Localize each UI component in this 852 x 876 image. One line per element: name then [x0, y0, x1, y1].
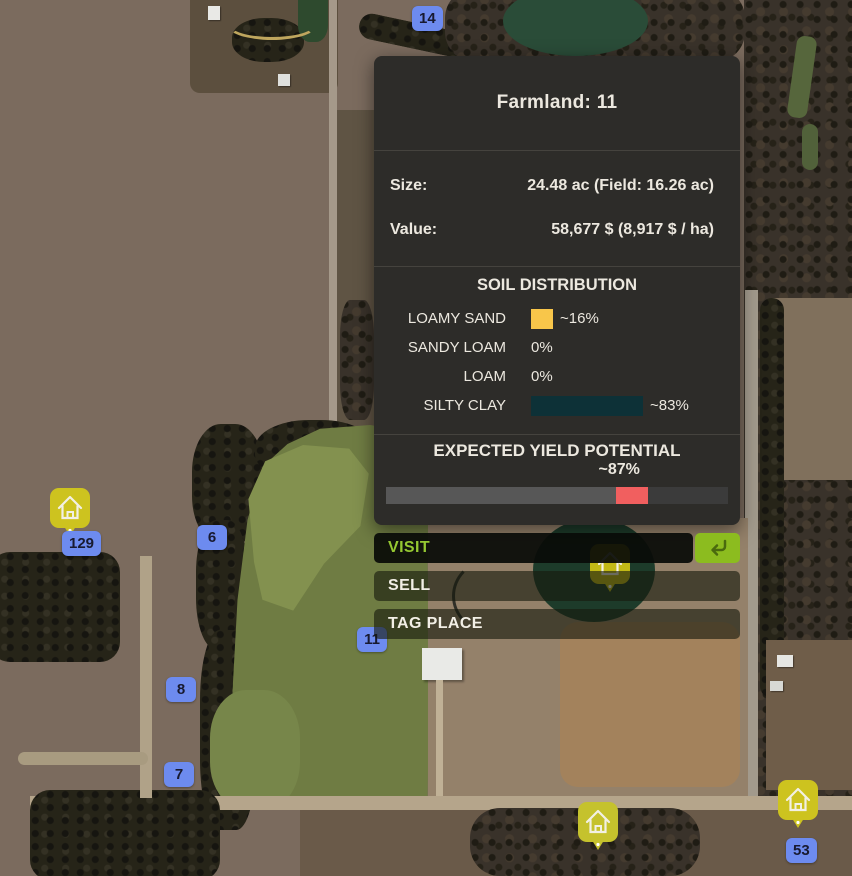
map-tree-line	[760, 298, 784, 698]
visit-button-row: VISIT	[374, 533, 740, 563]
field-marker-8[interactable]: 8	[166, 677, 196, 702]
value-label: Value:	[390, 221, 437, 239]
map-field-right	[772, 298, 852, 480]
soil-bar	[531, 396, 643, 416]
map-road-branch	[18, 752, 148, 765]
house-icon	[778, 780, 818, 828]
soil-label: SILTY CLAY	[390, 397, 506, 414]
return-arrow-icon	[705, 535, 731, 561]
size-label: Size:	[390, 177, 427, 195]
soil-heading: SOIL DISTRIBUTION	[374, 276, 740, 295]
map-building	[278, 74, 290, 86]
soil-row: SANDY LOAM 0%	[374, 333, 740, 362]
map-trail	[436, 680, 443, 798]
value-value: 58,677 $ (8,917 $ / ha)	[551, 221, 714, 239]
map-green-strip	[802, 124, 818, 170]
map-dirt-road	[226, 8, 318, 40]
tag-place-button[interactable]: TAG PLACE	[374, 609, 740, 639]
map-building	[770, 681, 783, 691]
yield-section: EXPECTED YIELD POTENTIAL ~87%	[374, 435, 740, 525]
soil-label: SANDY LOAM	[390, 339, 506, 356]
action-buttons: VISIT SELL TAG PLACE	[374, 533, 740, 647]
sell-label: SELL	[388, 577, 431, 595]
map-meadow-patch	[210, 690, 300, 810]
farmland-info-panel: Farmland: 11 Size: 24.48 ac (Field: 16.2…	[374, 56, 740, 525]
yield-heading: EXPECTED YIELD POTENTIAL	[374, 441, 740, 461]
map-trees	[340, 300, 374, 420]
farm-house-pin[interactable]	[776, 778, 820, 830]
map-forest	[30, 790, 220, 876]
map-building	[777, 655, 793, 667]
field-marker-6[interactable]: 6	[197, 525, 227, 550]
size-row: Size: 24.48 ac (Field: 16.26 ac)	[390, 164, 714, 208]
soil-percent: ~83%	[650, 397, 689, 414]
yield-label-row: ~87%	[374, 461, 740, 485]
soil-row: SILTY CLAY ~83%	[374, 391, 740, 420]
yield-bar	[386, 487, 728, 504]
panel-title: Farmland: 11	[374, 56, 740, 150]
value-row: Value: 58,677 $ (8,917 $ / ha)	[390, 208, 714, 252]
soil-percent: 0%	[531, 368, 553, 385]
soil-label: LOAMY SAND	[390, 310, 506, 327]
yield-fill	[386, 487, 616, 504]
visit-button[interactable]: VISIT	[374, 533, 693, 563]
sell-button[interactable]: SELL	[374, 571, 740, 601]
soil-row: LOAM 0%	[374, 362, 740, 391]
house-icon	[578, 802, 618, 850]
field-marker-14[interactable]: 14	[412, 6, 443, 31]
map-forest	[0, 552, 120, 662]
soil-percent: ~16%	[560, 310, 599, 327]
farm-house-pin[interactable]	[576, 800, 620, 852]
visit-shortcut-key[interactable]	[695, 533, 740, 563]
sell-button-row: SELL	[374, 571, 740, 601]
field-marker-7[interactable]: 7	[164, 762, 194, 787]
size-value: 24.48 ac (Field: 16.26 ac)	[527, 177, 714, 195]
yield-percent: ~87%	[599, 461, 640, 479]
house-icon	[50, 488, 90, 536]
stats-section: Size: 24.48 ac (Field: 16.26 ac) Value: …	[374, 151, 740, 266]
soil-label: LOAM	[390, 368, 506, 385]
soil-bar	[531, 309, 553, 329]
tag-place-button-row: TAG PLACE	[374, 609, 740, 639]
field-marker-129[interactable]: 129	[62, 531, 101, 556]
tag-place-label: TAG PLACE	[388, 615, 483, 633]
yield-marker	[616, 487, 648, 504]
soil-row: LOAMY SAND ~16%	[374, 304, 740, 333]
visit-label: VISIT	[388, 539, 430, 557]
soil-distribution-section: SOIL DISTRIBUTION LOAMY SAND ~16% SANDY …	[374, 267, 740, 434]
map-building-farm	[422, 648, 462, 680]
field-marker-53[interactable]: 53	[786, 838, 817, 863]
map-building	[208, 6, 220, 20]
soil-percent: 0%	[531, 339, 553, 356]
